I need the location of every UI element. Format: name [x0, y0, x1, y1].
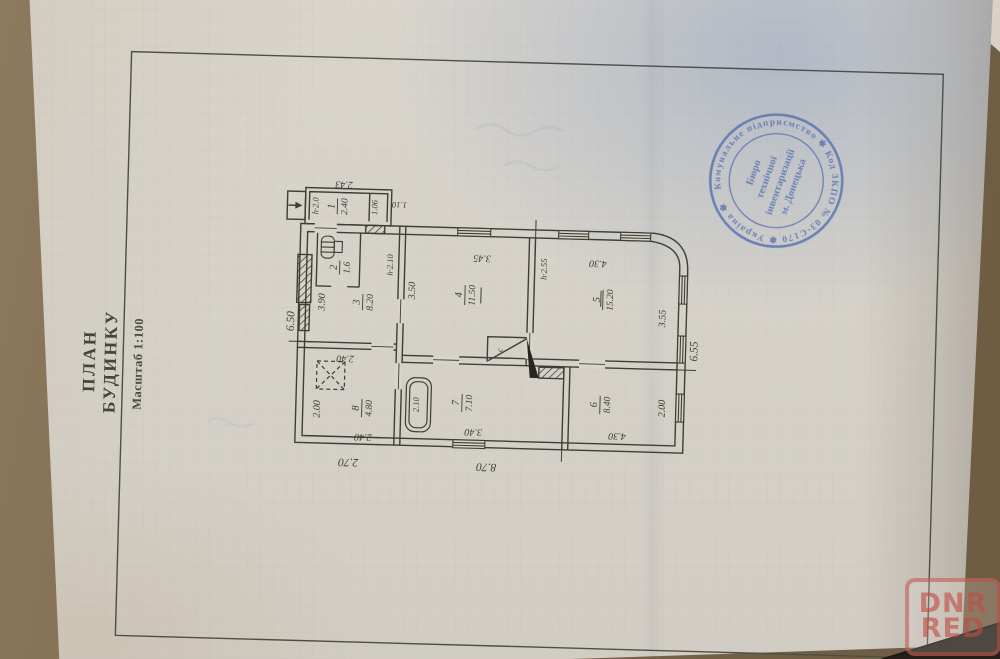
dim-height-2-55: h·2.55	[538, 258, 549, 280]
room-6-number: 6	[589, 401, 600, 407]
duct-hatch	[539, 367, 564, 379]
dim-bottom-outer: 8.70	[476, 460, 497, 473]
dim-bottom-left-outer: 2.70	[338, 456, 359, 469]
room-2-number: 2	[329, 264, 340, 270]
dim-3-90: 3.90	[316, 293, 328, 312]
stove	[316, 361, 345, 390]
dim-2-00-left: 2.00	[311, 400, 322, 418]
room-3-area: 8.20	[365, 294, 375, 311]
room-6-area: 8.40	[603, 396, 613, 413]
room-3-number: 3	[352, 299, 363, 306]
dim-3-40: 3.40	[464, 426, 483, 438]
dim-3-55: 3.55	[657, 310, 669, 329]
page-title-line1: ПЛАН	[78, 329, 100, 392]
dim-2-00-right: 2.00	[657, 400, 668, 418]
room-4-number: 4	[454, 291, 465, 297]
chimney-hatch	[297, 254, 312, 302]
room-7-number: 7	[451, 399, 462, 405]
room-4-area: 11.50	[468, 285, 479, 306]
dim-3-50: 3.50	[407, 282, 419, 301]
dim-2-40-top: 2.40	[336, 352, 354, 363]
dim-bathtub-2-10: 2.10	[411, 396, 421, 412]
floor-plan-drawing	[280, 187, 700, 465]
dim-2-40-bottom: 2.40	[354, 431, 372, 442]
label-closet: с	[494, 348, 504, 352]
dnr-red-watermark: DNR RED	[905, 578, 1000, 656]
room-5-number: 5	[592, 297, 603, 303]
dimension-ticks	[285, 213, 700, 465]
photo-of-floor-plan-document: ПЛАН БУДИНКУ Масштаб 1:100	[0, 0, 1000, 659]
dim-height-2-10: h·2.10	[384, 253, 395, 275]
dim-porch-width: 2.43	[335, 178, 353, 189]
dim-left-outer: 6.50	[285, 311, 298, 332]
document-content: ПЛАН БУДИНКУ Масштаб 1:100	[0, 0, 1000, 659]
chimney-hatch-2	[299, 304, 310, 330]
room-1-area: 2.40	[340, 198, 350, 215]
dim-3-45: 3.45	[473, 252, 492, 264]
dim-1-10: 1.10	[391, 200, 407, 210]
outer-wall	[295, 223, 689, 453]
room-2-area: 1.6	[343, 261, 353, 273]
windows	[335, 189, 690, 455]
wall-hatch	[366, 225, 385, 234]
dim-right-outer: 6.55	[688, 341, 701, 362]
room-1-number: 1	[326, 203, 337, 209]
room-8-area: 4.80	[365, 400, 375, 417]
stamp-center-text: Бюро технічної інвентаризації м. Донецьк…	[737, 138, 810, 221]
bti-stamp: Комунальне підприємство ✱ Код ЗКПО № 03·…	[698, 102, 855, 259]
dim-porch-height: h·2.0	[310, 196, 320, 214]
dim-4-30-top: 4.30	[589, 257, 607, 268]
dimension-labels: 2.43 1.10 1.06 h·2.0 6.50 3.90 2.00 2.40…	[281, 177, 705, 479]
boiler-fixture	[321, 236, 343, 259]
entrance-arrow-icon	[288, 202, 302, 209]
title-block: ПЛАН БУДИНКУ Масштаб 1:100	[78, 308, 147, 414]
watermark-line2: RED	[921, 617, 986, 642]
page-title-line2: БУДИНКУ	[99, 309, 122, 414]
dim-1-06: 1.06	[369, 199, 379, 215]
room-5-area: 15.20	[606, 289, 617, 311]
dim-4-30-bottom: 4.30	[608, 430, 626, 441]
room-7-area: 7.10	[465, 394, 475, 411]
page-scale: Масштаб 1:100	[130, 318, 147, 410]
room-8-number: 8	[351, 404, 362, 410]
